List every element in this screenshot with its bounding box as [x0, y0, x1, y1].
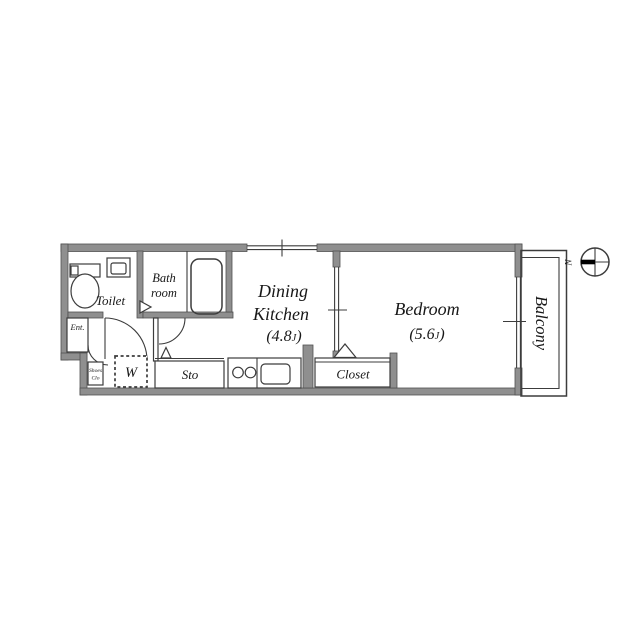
toilet-flush-handle — [71, 266, 78, 275]
wall-bottom — [80, 388, 522, 395]
wall-bath-right — [226, 251, 232, 312]
svg-text:Shoes: Shoes — [89, 368, 102, 374]
compass-north-bar — [581, 260, 595, 265]
compass-north-label: N — [564, 259, 574, 267]
wall-bath-bottom — [143, 312, 233, 318]
kitchen-counter — [228, 358, 301, 388]
kitchen-sink — [261, 364, 290, 384]
toilet-door-arc — [105, 318, 147, 360]
wall-toilet-bottom — [68, 312, 103, 318]
bathroom-label: Bath room — [151, 271, 177, 300]
toilet-bowl — [71, 274, 99, 308]
dk-bedroom-sliding-partition — [328, 267, 347, 351]
dk-door-arc — [159, 318, 185, 344]
bathtub — [191, 259, 222, 314]
wall-top-left — [61, 244, 247, 252]
svg-text:Kitchen: Kitchen — [252, 304, 309, 324]
wall-kitchen-right — [303, 345, 313, 388]
closet-label: Closet — [336, 367, 370, 382]
svg-text:Clo: Clo — [91, 376, 99, 382]
dining-kitchen-label: Dining Kitchen (4.8J) — [252, 281, 309, 345]
balcony-window — [503, 277, 526, 368]
burner-left-icon — [233, 367, 244, 378]
dk-door-triangle — [161, 348, 171, 359]
dk-door-frame — [154, 318, 159, 361]
burner-right-icon — [245, 367, 256, 378]
balcony-label: Balcony — [532, 296, 551, 351]
storage-label: Sto — [182, 367, 199, 382]
wall-partition-top-stub — [333, 251, 340, 267]
compass: N — [564, 248, 610, 276]
bathroom-fixtures — [187, 251, 222, 314]
svg-text:Bedroom: Bedroom — [394, 299, 459, 319]
wall-closet-right — [390, 353, 397, 388]
svg-text:Bath: Bath — [152, 271, 176, 285]
wall-top-right — [317, 244, 522, 252]
floor-plan-drawing: N Toilet Bath room Ent. Shoes Clo W Sto … — [0, 0, 639, 640]
dk-window — [247, 240, 317, 257]
svg-text:room: room — [151, 286, 177, 300]
floor-plan-canvas: N Toilet Bath room Ent. Shoes Clo W Sto … — [0, 0, 639, 640]
entrance-label: Ent. — [70, 322, 85, 332]
toilet-sink-basin — [111, 263, 126, 274]
bedroom-size: (5.6J) — [409, 326, 444, 343]
washer-label: W — [125, 365, 139, 381]
bedroom-label: Bedroom (5.6J) — [394, 299, 459, 343]
toilet-label: Toilet — [96, 293, 126, 308]
svg-text:Dining: Dining — [257, 281, 308, 301]
bathroom-door-triangle — [140, 301, 151, 313]
dining-kitchen-size: (4.8J) — [266, 328, 301, 345]
